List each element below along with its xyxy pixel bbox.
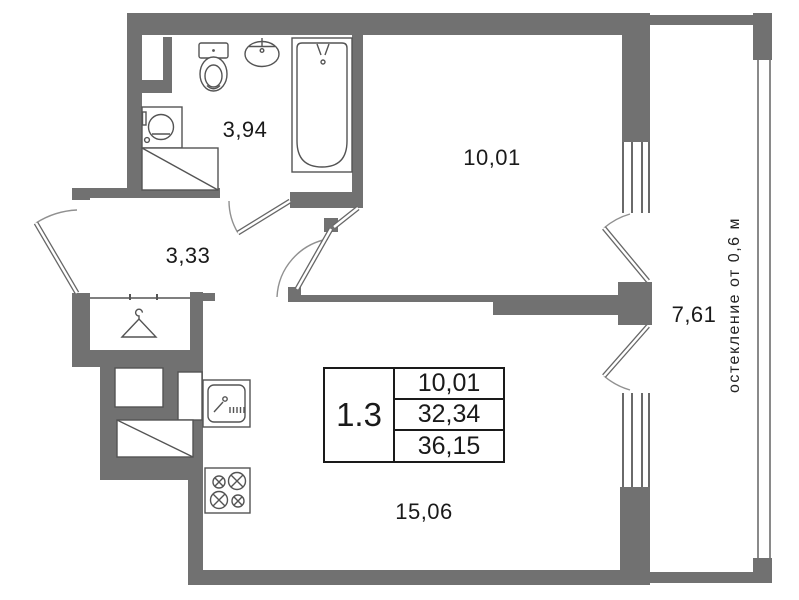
unit-area-table: 1.3 10,01 32,34 36,15 [323,367,505,463]
toilet-icon [199,43,228,91]
bedroom-balcony-door-swing [604,214,648,281]
unit-number: 1.3 [325,369,395,461]
balcony-glazing-line [757,25,759,572]
glazing-note: остекление от 0,6 м [720,140,750,470]
area-row-living: 10,01 [395,369,503,400]
entrance-door-swing [36,210,77,293]
floor-plan: 3,94 10,01 3,33 15,06 7,61 остекление от… [0,0,799,600]
cabinet-diagonal [142,148,218,190]
living-kitchen-area-label: 15,06 [395,499,453,525]
wall-shaft-bottom [140,80,172,93]
balcony-area-label: 7,61 [672,302,717,328]
kitchen-sink-icon [203,380,250,427]
bathtub-icon [292,38,352,172]
wall-partition-thin [293,295,493,302]
area-row-total: 32,34 [395,400,503,431]
wall-hall-bottom-stub [203,293,215,301]
wall-entry-corner [72,188,90,200]
hallway-area-label: 3,33 [166,243,211,269]
balcony-glazing-line [769,25,771,572]
living-room-door-swing [277,229,331,297]
pillar-balcony-mid [618,282,652,325]
wall-bathroom-left [127,13,142,198]
pillar-top-right [753,13,772,60]
wall-bath-bottom-left [142,188,220,198]
wall-door-hinge-block [288,287,301,302]
living-balcony-door-swing [604,326,648,390]
wall-top-main [127,13,650,35]
bedroom-area-label: 10,01 [463,145,521,171]
wall-bath-bottom-right [290,192,363,208]
wall-shaft-right [163,37,172,82]
wall-bath-bedroom-partition [352,25,363,208]
wall-living-right-bottom [620,487,650,572]
wardrobe-rail [90,294,190,300]
wall-bedroom-right-top [622,20,650,142]
washbasin-icon [245,38,279,67]
window-icon [622,393,650,487]
wall-living-left [188,457,203,585]
bathroom-door-swing [229,201,290,233]
bathroom-area-label: 3,94 [223,117,268,143]
pillar-bottom-right [753,558,772,583]
wall-partition-thick [493,295,620,315]
window-icon [622,142,650,213]
wall-diagonal-block [324,218,338,232]
stove-icon [205,468,250,513]
area-row-overall: 36,15 [395,431,503,461]
hanger-icon [122,309,156,337]
washing-machine-icon [142,107,182,148]
wall-bottom-main [188,570,650,585]
wall-wardrobe-right [190,292,203,367]
